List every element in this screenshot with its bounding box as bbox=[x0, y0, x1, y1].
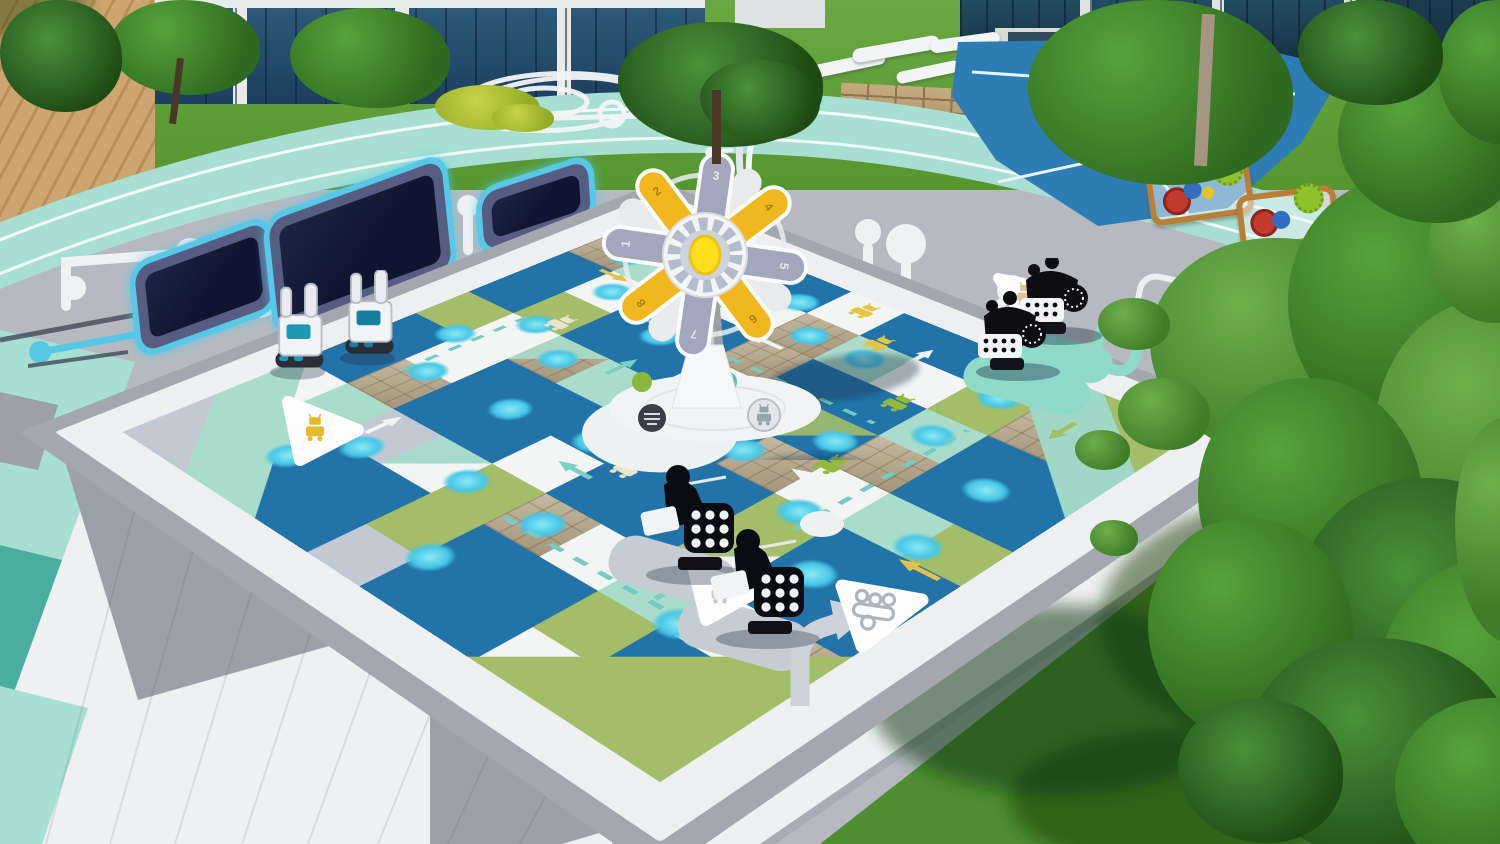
sculpture-shadow2 bbox=[750, 454, 874, 460]
black-seesaw-robots bbox=[620, 455, 880, 695]
medallion-green bbox=[632, 372, 652, 392]
black-seesaw-robot bbox=[640, 465, 750, 585]
playground-aerial-render: 1 2 3 4 5 6 7 8 bbox=[0, 0, 1500, 844]
white-robot-riders bbox=[270, 270, 440, 400]
hub-center bbox=[690, 236, 720, 274]
white-robot-rider bbox=[340, 270, 395, 366]
pinwheel: 1 2 3 4 5 6 7 8 bbox=[602, 152, 808, 358]
white-robot-rider bbox=[270, 284, 325, 380]
black-robot-rockers bbox=[970, 258, 1140, 398]
pinwheel-sculpture: 1 2 3 4 5 6 7 8 bbox=[560, 0, 980, 460]
